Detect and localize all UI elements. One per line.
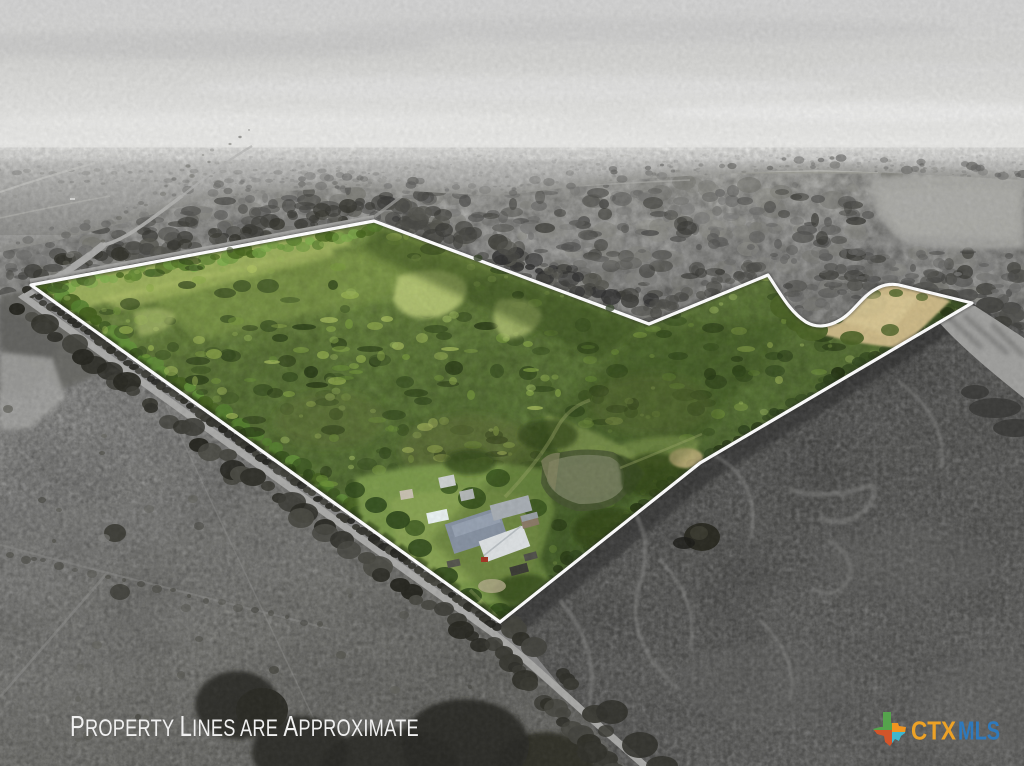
svg-text:CTX: CTX (911, 718, 956, 746)
svg-text:MLS: MLS (958, 718, 1000, 746)
